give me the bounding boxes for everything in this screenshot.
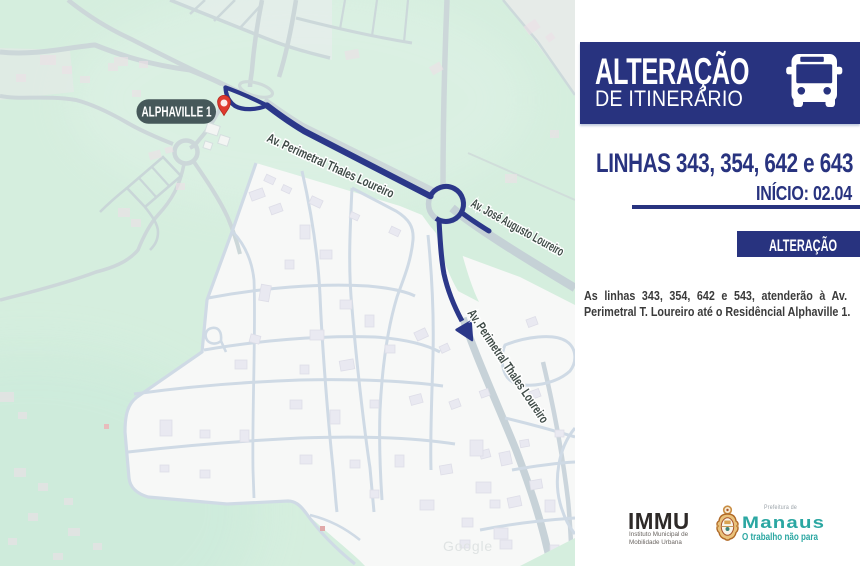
svg-text:Google: Google: [443, 538, 493, 554]
svg-text:ALPHAVILLE 1: ALPHAVILLE 1: [142, 104, 212, 121]
